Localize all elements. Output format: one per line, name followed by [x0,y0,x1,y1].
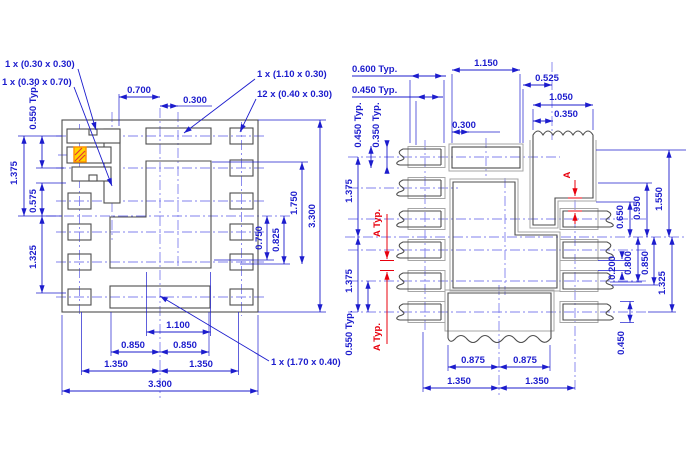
callout-110x030: 1 x (1.10 x 0.30) [257,69,327,80]
callout-170x040: 1 x (1.70 x 0.40) [271,357,341,368]
dim-1375-b: 1.375 [344,268,355,292]
thermal-pad [110,161,211,268]
dim-0850-right: 0.850 [173,340,197,351]
dim-0350-typ-v: 0.350 Typ. [371,102,382,147]
dim-1350-left: 1.350 [104,359,128,370]
dim-0550-typ: 0.550 Typ. [28,84,39,129]
dim-1325-r: 1.325 [657,270,668,294]
dim-0450-r: 0.450 [616,331,627,355]
dim-0700: 0.700 [127,85,151,96]
dim-3300-h: 3.300 [148,379,172,390]
dim-1375: 1.375 [9,160,20,184]
a-typ-label-1: A Typ. [372,209,383,237]
dim-0300-r: 0.300 [452,120,476,131]
left-trace-pads [397,149,441,320]
dim-1350-right: 1.350 [189,359,213,370]
dim-0800: 0.800 [623,251,634,275]
dim-0600-typ: 0.600 Typ. [352,64,397,75]
left-view-dimensions: 0.700 0.300 1 x (0.30 x 0.30) 1 x (0.30 … [2,59,341,395]
dim-0875-right: 0.875 [513,355,537,366]
dim-1750: 1.750 [289,191,300,215]
drawing-canvas: 0.700 0.300 1 x (0.30 x 0.30) 1 x (0.30 … [0,0,690,460]
right-view: 0.600 Typ. 0.450 Typ. 0.450 Typ. 0.350 T… [344,58,686,395]
dim-0550-typ-r: 0.550 Typ. [344,310,355,355]
dim-0350-r: 0.350 [554,109,578,120]
dim-0575: 0.575 [28,188,39,212]
dim-0950: 0.950 [632,196,643,220]
pin1-highlight-pad [74,147,86,162]
dim-1375-a: 1.375 [344,178,355,202]
dim-0300: 0.300 [183,95,207,106]
dim-0875-left: 0.875 [461,355,485,366]
dim-0525: 0.525 [535,73,559,84]
a-typ-label-2: A Typ. [372,323,383,351]
bottom-pad-copper [448,293,551,343]
dim-1350-right-r: 1.350 [525,376,549,387]
callout-040x030: 12 x (0.40 x 0.30) [257,89,332,100]
dim-0825: 0.825 [271,227,282,251]
land-pattern-drawing: 0.700 0.300 1 x (0.30 x 0.30) 1 x (0.30 … [0,0,690,460]
dim-3300-v: 3.300 [307,204,318,228]
dim-1100: 1.100 [166,320,190,331]
dim-1150: 1.150 [474,58,498,69]
left-view: 0.700 0.300 1 x (0.30 x 0.30) 1 x (0.30 … [2,59,341,398]
dim-1550: 1.550 [654,187,665,211]
pin1-bottom-notch [89,175,97,181]
dim-0850-r: 0.850 [640,251,651,275]
dim-1050: 1.050 [549,92,573,103]
dim-1325: 1.325 [28,244,39,268]
dim-0450-typ-v: 0.450 Typ. [353,102,364,147]
callout-030x030: 1 x (0.30 x 0.30) [5,59,75,70]
reference-a-typ-top: A Typ. [372,209,394,270]
dim-0750: 0.750 [254,226,265,250]
right-view-mask [408,140,598,331]
dim-0850-left: 0.850 [121,340,145,351]
pin1-pad-complex [67,129,120,203]
right-trace-pads [563,211,613,320]
a-label: A [562,171,573,178]
reference-a-typ-bottom: A Typ. [372,272,387,351]
dim-0200: 0.200 [607,256,618,280]
dim-1350-left-r: 1.350 [447,376,471,387]
dim-0650: 0.650 [615,205,626,229]
bottom-pad-mask [445,290,554,331]
dim-0450-typ-h: 0.450 Typ. [352,85,397,96]
